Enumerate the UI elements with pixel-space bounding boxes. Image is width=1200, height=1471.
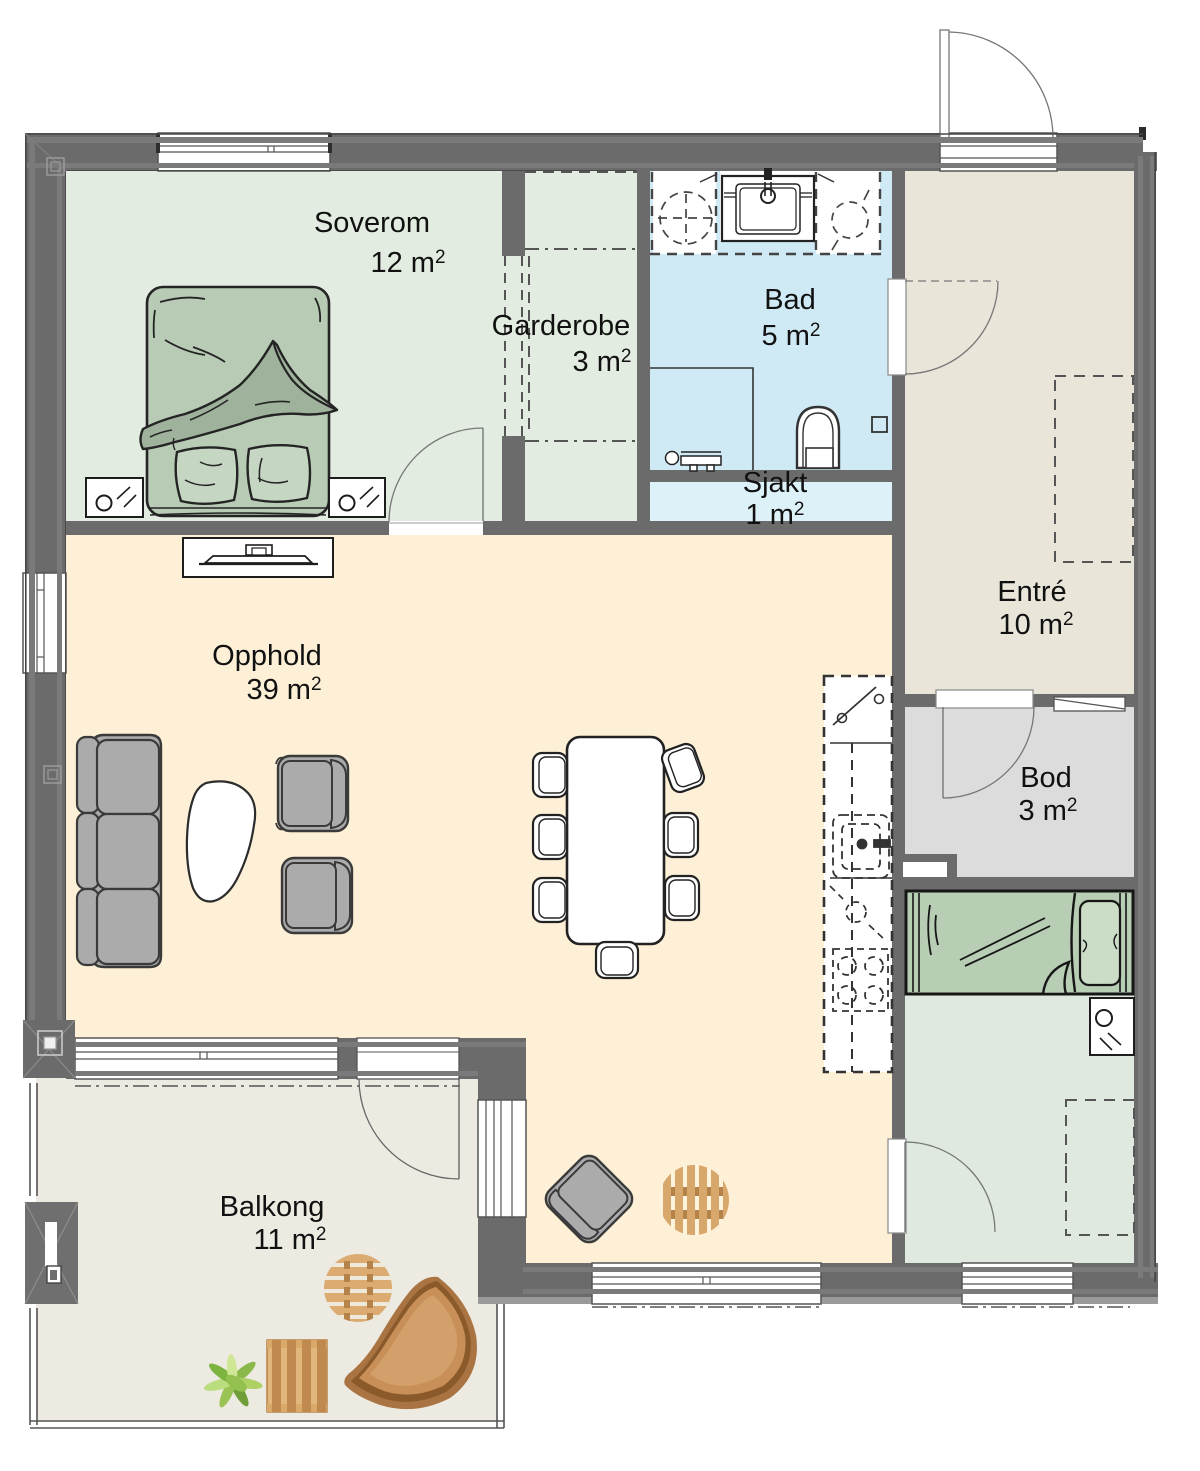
- svg-text:Bad: Bad: [764, 284, 816, 316]
- svg-text:10 m2: 10 m2: [998, 609, 1073, 641]
- svg-text:Garderobe: Garderobe: [492, 310, 631, 342]
- svg-text:Entré: Entré: [997, 576, 1066, 608]
- svg-text:Opphold: Opphold: [212, 640, 322, 672]
- svg-text:12 m2: 12 m2: [370, 247, 445, 279]
- svg-text:39 m2: 39 m2: [246, 674, 321, 706]
- svg-text:Balkong: Balkong: [220, 1191, 325, 1223]
- svg-text:Bod: Bod: [1020, 762, 1072, 794]
- svg-text:Soverom: Soverom: [314, 207, 430, 239]
- svg-text:Sjakt: Sjakt: [743, 467, 807, 499]
- svg-text:11 m2: 11 m2: [254, 1224, 327, 1256]
